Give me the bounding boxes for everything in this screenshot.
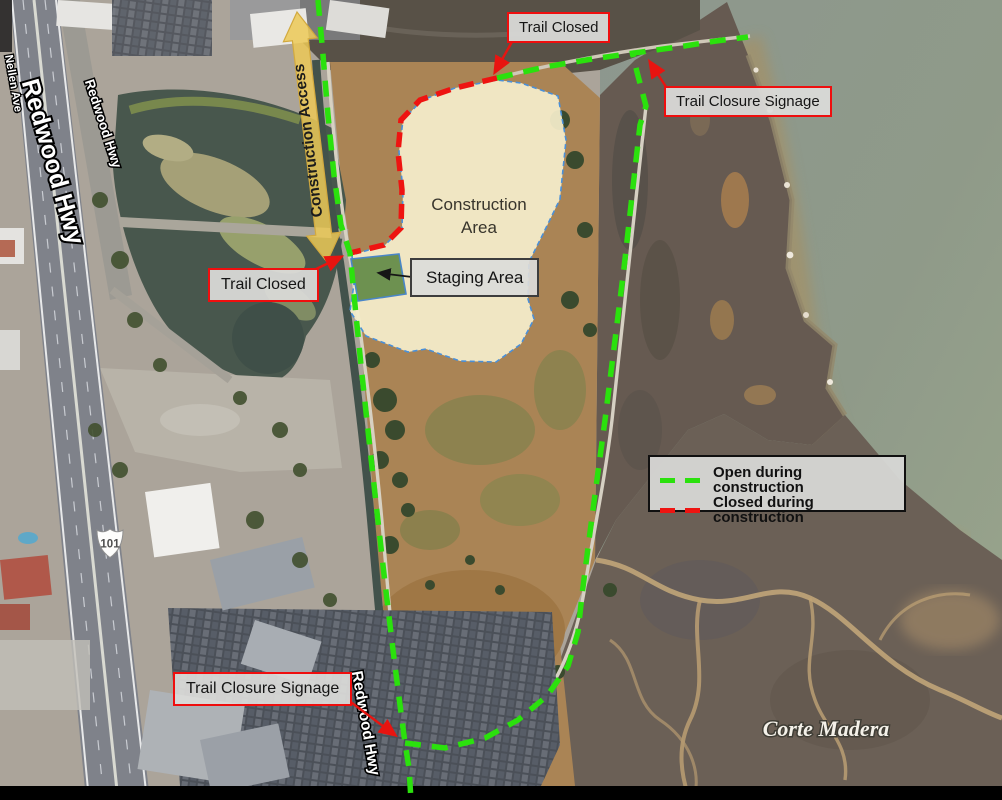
svg-text:101: 101 xyxy=(100,539,120,551)
legend-item-open: Open during construction xyxy=(660,465,894,495)
trail-closure-map: Nellen Ave Redwood Hwy Redwood Hwy Redwo… xyxy=(0,0,1002,800)
legend-item-closed: Closed during construction xyxy=(660,495,894,525)
staging-area-callout: Staging Area xyxy=(410,258,539,297)
trail-closure-signage-callout-south: Trail Closure Signage xyxy=(173,672,352,706)
map-legend: Open during construction Closed during c… xyxy=(648,455,906,512)
open-trail-swatch xyxy=(660,478,700,483)
place-label-corte-madera: Corte Madera xyxy=(763,716,890,741)
aerial-basemap: Nellen Ave Redwood Hwy Redwood Hwy Redwo… xyxy=(0,0,1002,800)
trail-closed-callout-west: Trail Closed xyxy=(208,268,319,302)
trail-closed-callout-top: Trail Closed xyxy=(507,12,610,43)
construction-area-label: Construction Area xyxy=(417,194,541,240)
closed-trail-swatch xyxy=(660,508,700,513)
bottom-black-bar xyxy=(0,786,1002,800)
trail-closure-signage-callout-north: Trail Closure Signage xyxy=(664,86,832,117)
